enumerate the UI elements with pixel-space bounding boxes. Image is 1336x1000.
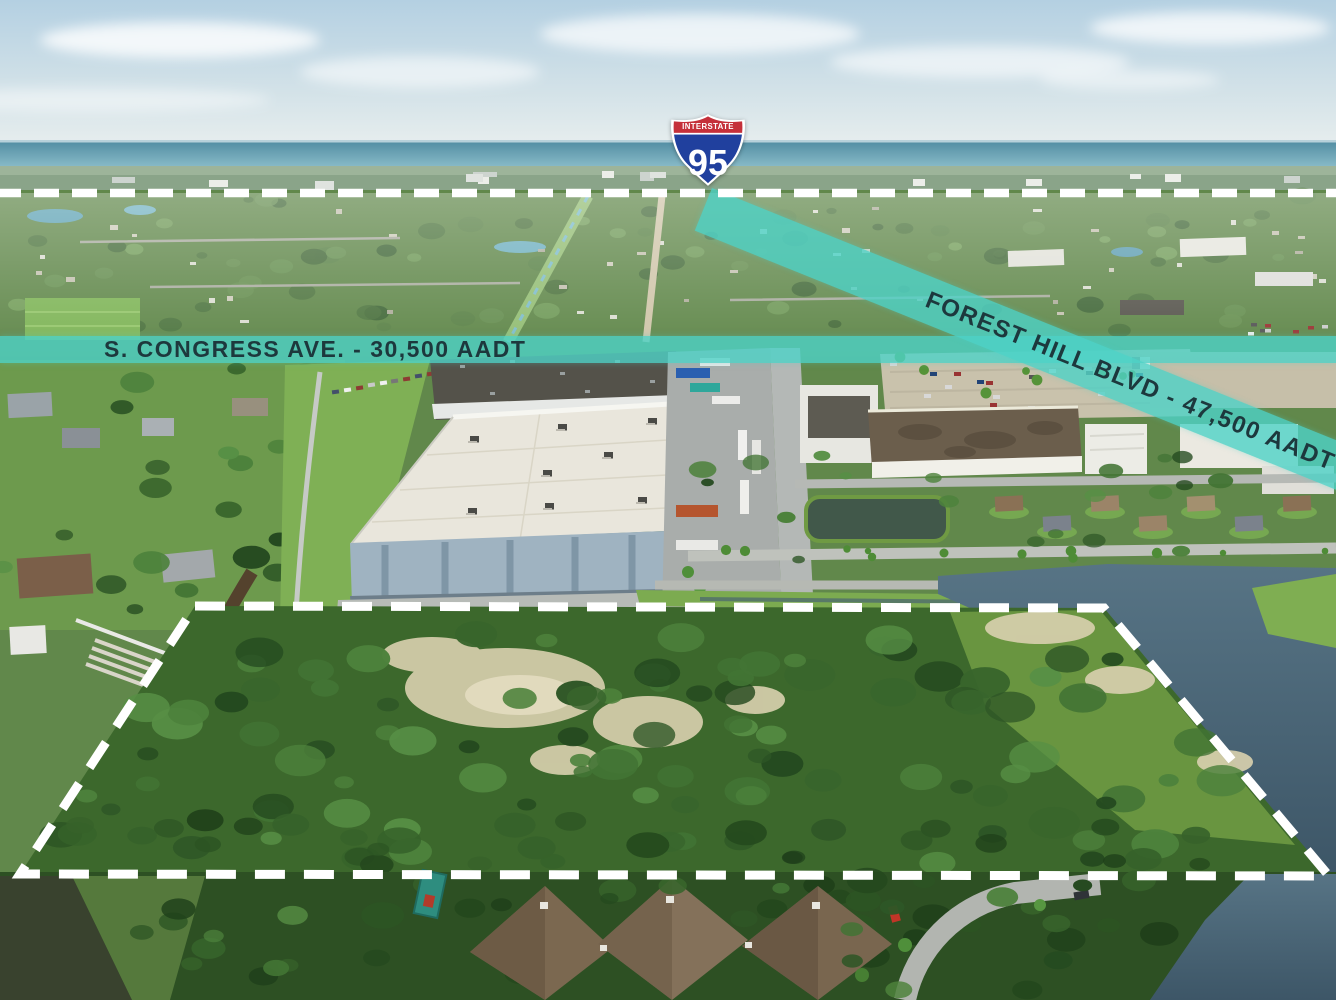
interstate-shield-graphic: INTERSTATE 95 <box>669 112 747 188</box>
shield-route-number: 95 <box>688 143 728 183</box>
ocean <box>0 140 1336 170</box>
s-congress-label: S. CONGRESS AVE. - 30,500 AADT <box>104 338 526 361</box>
warehouse-building <box>280 351 678 625</box>
aerial-listing-image: S. CONGRESS AVE. - 30,500 AADT FOREST HI… <box>0 0 1336 1000</box>
distant-shoreline <box>0 166 1336 194</box>
shield-header-text: INTERSTATE <box>682 122 734 131</box>
aerial-photo-background <box>0 0 1336 1000</box>
i95-interstate-shield: INTERSTATE 95 <box>669 112 747 188</box>
sky <box>0 0 1336 152</box>
property-parcel <box>20 606 1329 876</box>
foreground-strip <box>0 868 1336 1000</box>
loading-dock-area <box>662 348 814 614</box>
